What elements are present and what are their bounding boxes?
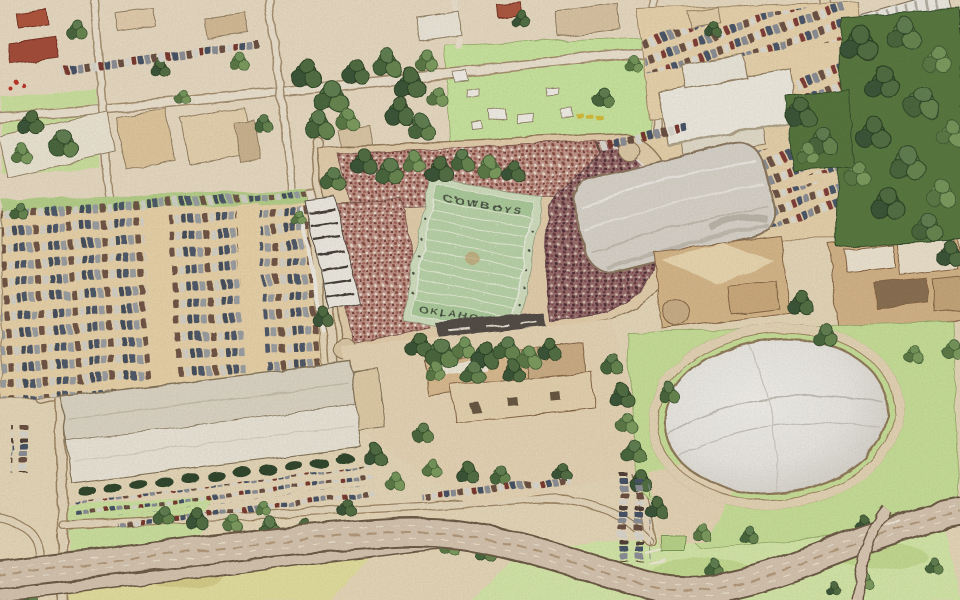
aerial-campus-illustration: COWBOYS OKLAHOMA	[0, 0, 960, 600]
aerial-illustration-stage: COWBOYS OKLAHOMA	[0, 0, 960, 600]
paper-grain-overlay	[0, 0, 960, 600]
